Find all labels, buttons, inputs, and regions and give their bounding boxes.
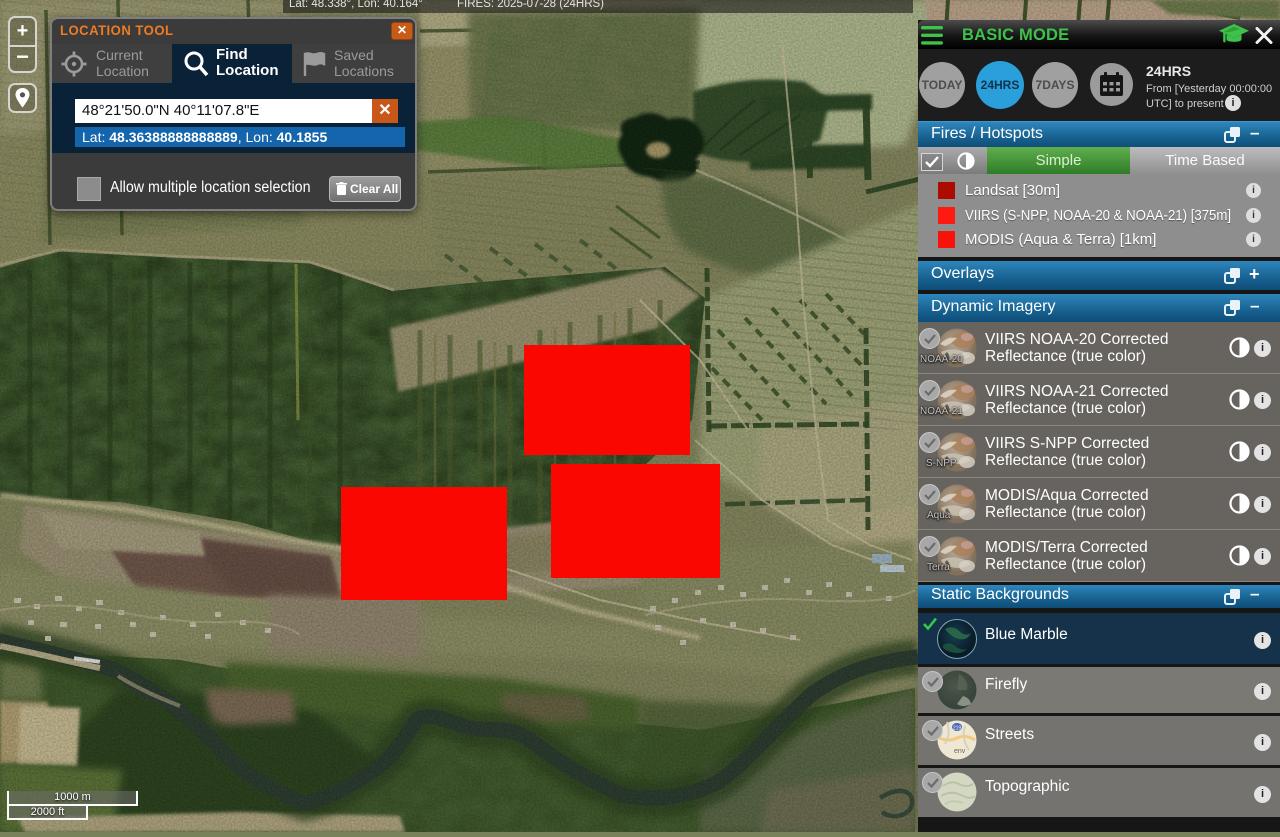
svg-text:219: 219	[953, 726, 962, 732]
svg-text:env: env	[954, 748, 966, 755]
